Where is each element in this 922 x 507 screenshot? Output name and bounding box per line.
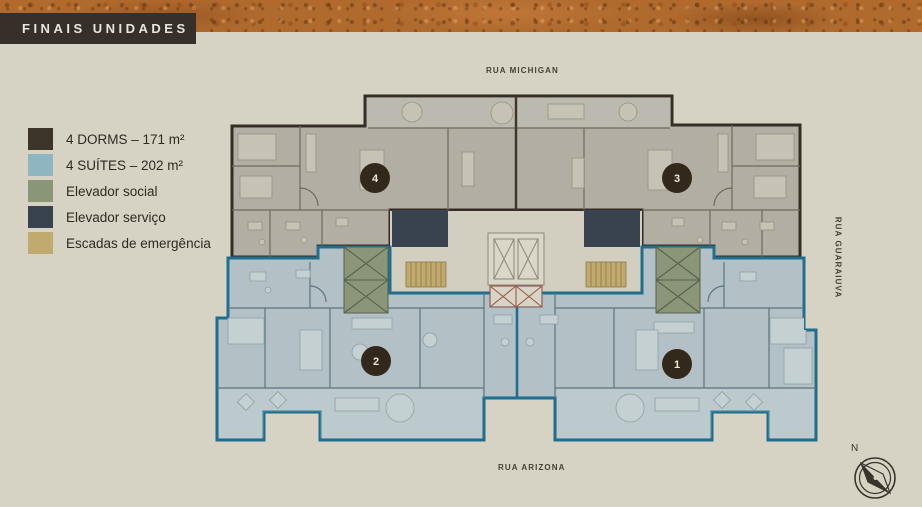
elevator-service-right <box>584 210 640 247</box>
svg-text:3: 3 <box>674 173 680 185</box>
emergency-stairs-left <box>406 262 446 287</box>
elevator-service-left <box>392 210 448 247</box>
elevator-social-left <box>344 247 388 313</box>
unit-badge-2: 2 <box>361 346 391 376</box>
svg-text:1: 1 <box>674 359 680 371</box>
floor-plan-page: FINAIS UNIDADES 4 DORMS – 171 m² 4 SUÍTE… <box>0 0 922 507</box>
floor-plan-drawing: 4 3 2 1 <box>0 0 922 507</box>
unit-badge-3: 3 <box>662 163 692 193</box>
unit-badge-4: 4 <box>360 163 390 193</box>
compass-icon <box>855 458 895 498</box>
elevator-social-right <box>656 247 700 313</box>
unit-badge-1: 1 <box>662 349 692 379</box>
svg-text:4: 4 <box>372 173 379 185</box>
service-shaft-center <box>490 286 542 307</box>
central-shaft <box>488 233 544 285</box>
emergency-stairs-right <box>586 262 626 287</box>
svg-text:2: 2 <box>373 356 379 368</box>
